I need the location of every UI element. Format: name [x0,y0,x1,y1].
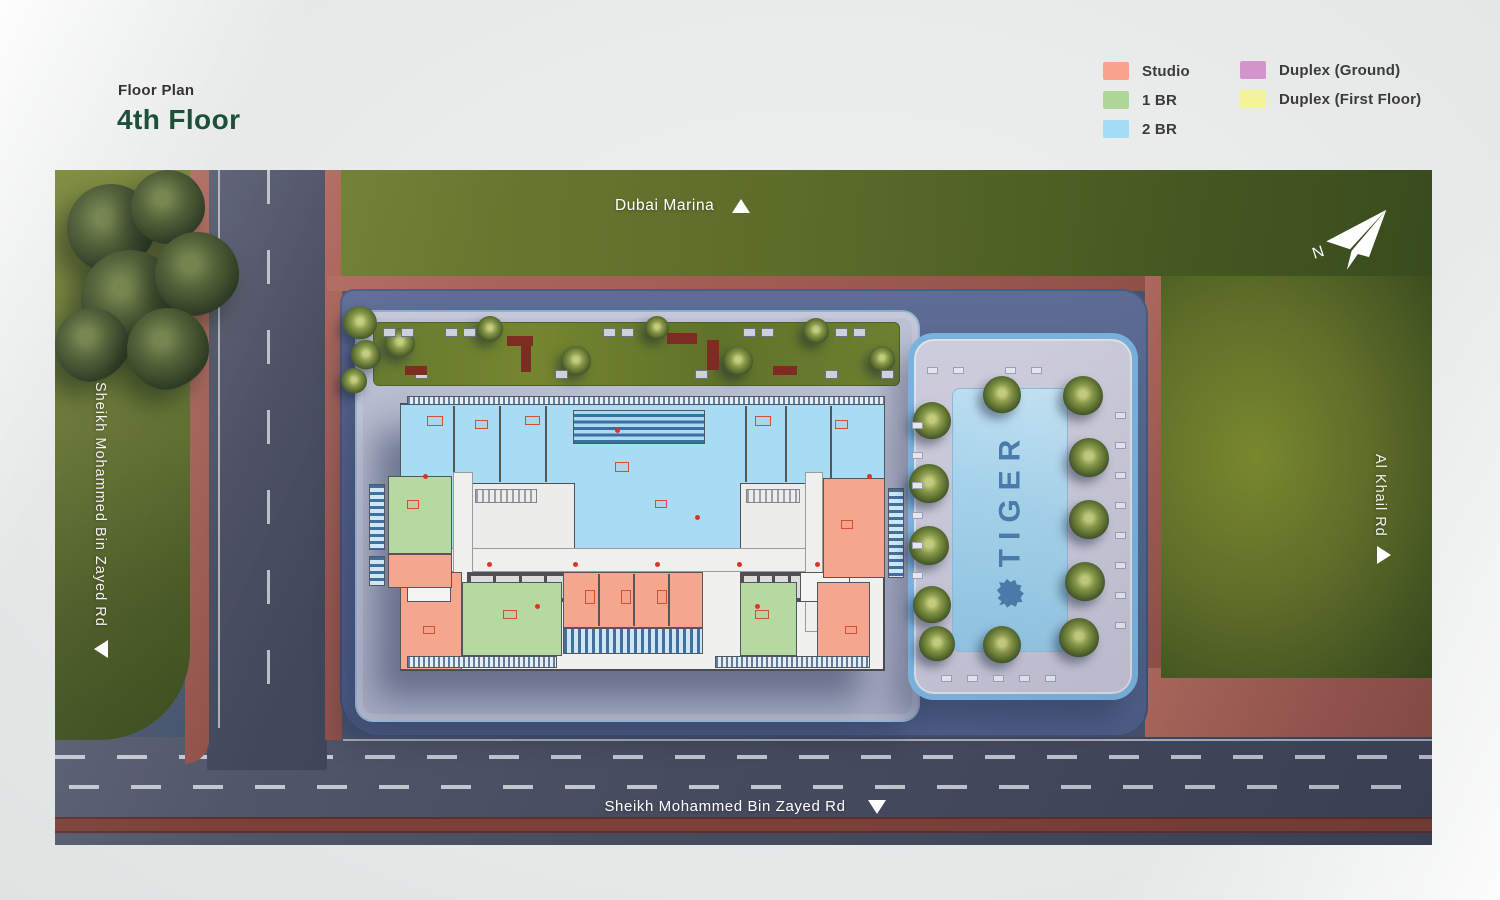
palm-tree-icon [1069,438,1109,478]
unit-1br [388,476,452,554]
palm-tree-icon [1059,618,1099,658]
lane-dashes [267,170,270,715]
pool-lounger [1115,532,1126,539]
legend-label: Duplex (Ground) [1279,62,1400,79]
wall [598,574,600,626]
palm-tree-icon [1069,500,1109,540]
furniture-outline [755,610,769,619]
pool-lounger [1031,367,1042,374]
planter-box [555,370,568,379]
planter-box [621,328,634,337]
label-dubai-marina: Dubai Marina [615,197,750,215]
road-label-bottom: Sheikh Mohammed Bin Zayed Rd [604,798,845,815]
planter-box [463,328,476,337]
road-label-left: Sheikh Mohammed Bin Zayed Rd [92,382,108,627]
plan-annotation-dot [737,562,742,567]
furniture-outline [755,416,771,426]
staircase [475,489,537,503]
site-plan-map: TIGER [55,170,1432,845]
bench [521,346,531,372]
palm-tree-icon [351,340,381,370]
pool-lounger [912,542,923,549]
legend-item-2br: 2 BR [1103,120,1177,138]
sidewalk [1145,668,1432,737]
one-br-swatch [1103,91,1129,109]
grass-right [1161,276,1432,678]
wall [633,574,635,626]
balcony-strip [888,488,904,578]
plan-annotation-dot [487,562,492,567]
palm-tree-icon [343,306,377,340]
pool-lounger [912,512,923,519]
wall [499,406,501,482]
furniture-outline [841,520,853,529]
tree-icon [55,308,129,382]
legend-item-1br: 1 BR [1103,91,1177,109]
unit-studio [823,478,885,578]
floor-plan-label: Floor Plan [118,82,194,99]
palm-tree-icon [913,586,951,624]
palm-tree-icon [919,626,955,662]
furniture-outline [845,626,857,634]
lane-dashes [69,785,1432,789]
planter-box [445,328,458,337]
wall [745,406,747,482]
plan-annotation-dot [755,604,760,609]
planter-box [383,328,396,337]
pool-lounger [1019,675,1030,682]
furniture-outline [503,610,517,619]
label-bottom-road: Sheikh Mohammed Bin Zayed Rd [575,798,915,815]
plan-annotation-dot [423,474,428,479]
road-label-right: Al Khail Rd [1372,454,1388,537]
road-edge-line [343,739,1432,741]
plan-annotation-dot [655,562,660,567]
two-br-swatch [1103,120,1129,138]
furniture-outline [621,590,631,604]
pool-lounger [1115,412,1126,419]
furniture-outline [407,500,419,509]
wall [785,406,787,482]
pool-lounger [1045,675,1056,682]
pool-lounger [912,572,923,579]
planter-box [881,370,894,379]
pool-lounger [1115,622,1126,629]
unit-1br [740,582,797,656]
balcony-strip [369,484,385,550]
bench [405,366,427,375]
legend-item-studio: Studio [1103,62,1190,80]
arrow-up-icon [732,199,750,213]
planter-box [835,328,848,337]
palm-tree-icon [477,316,503,342]
arrow-down-icon [868,800,886,814]
palm-tree-icon [803,318,829,344]
palm-tree-icon [1063,376,1103,416]
grass-top [341,170,1432,276]
planter-box [825,370,838,379]
tree-icon [155,232,239,316]
legend-item-duplex-ground: Duplex (Ground) [1240,61,1400,79]
furniture-outline [657,590,667,604]
pool-lounger [953,367,964,374]
palm-tree-icon [341,368,367,394]
wall [453,406,455,482]
pool-lounger [967,675,978,682]
pool-lounger [912,452,923,459]
bench [667,333,697,344]
plan-annotation-dot [573,562,578,567]
unit-studio [817,582,870,662]
plan-annotation-dot [535,604,540,609]
furniture-outline [423,626,435,634]
legend-label: 2 BR [1142,121,1177,138]
palm-tree-icon [1065,562,1105,602]
palm-tree-icon [983,626,1021,664]
pool-lounger [927,367,938,374]
furniture-outline [655,500,667,508]
palm-tree-icon [645,316,669,340]
pool-lounger [1115,592,1126,599]
furniture-outline [475,420,488,429]
pool-lounger [1005,367,1016,374]
bench [507,336,533,346]
pool-lounger [1115,442,1126,449]
unit-1br [462,582,562,656]
palm-tree-icon [983,376,1021,414]
palm-tree-icon [723,346,753,376]
bench [707,340,719,370]
planter-box [603,328,616,337]
bench [773,366,797,375]
pool-brand-text: TIGER [993,431,1027,568]
balcony-strip [407,656,557,668]
unit-studio [388,554,452,588]
pool-lounger [912,422,923,429]
road-median [55,817,1432,833]
furniture-outline [427,416,443,426]
furniture-outline [615,462,629,472]
pool-branding: TIGER [993,431,1027,610]
balcony-strip [715,656,870,668]
compass-letter: N [1310,243,1326,263]
shaded-terrace [573,410,705,444]
plan-annotation-dot [815,562,820,567]
pool-lounger [941,675,952,682]
pool-lounger [993,675,1004,682]
planter-box [401,328,414,337]
palm-tree-icon [869,346,895,372]
planter-box [743,328,756,337]
north-compass-icon: N [1310,205,1390,273]
plan-annotation-dot [867,474,872,479]
pool-lounger [912,482,923,489]
balcony-strip [563,628,703,654]
arrow-right-icon [1377,546,1391,564]
palm-tree-icon [913,402,951,440]
pool-lounger [1115,502,1126,509]
legend-label: 1 BR [1142,92,1177,109]
arrow-left-icon [94,640,108,658]
duplex-ground-swatch [1240,61,1266,79]
legend-item-duplex-first: Duplex (First Floor) [1240,90,1421,108]
legend-label: Studio [1142,63,1190,80]
plan-annotation-dot [615,428,620,433]
swimming-pool: TIGER [952,388,1068,652]
tree-icon [127,308,209,390]
wall [668,574,670,626]
staircase [746,489,800,503]
page-title: 4th Floor [117,104,240,136]
furniture-outline [525,416,540,425]
road-label-top: Dubai Marina [615,197,714,215]
tiger-logo-icon [994,577,1026,609]
balcony-strip [369,556,385,586]
legend-label: Duplex (First Floor) [1279,91,1421,108]
planter-box [761,328,774,337]
planter-box [695,370,708,379]
pool-lounger [1115,562,1126,569]
wall [545,406,547,482]
duplex-first-swatch [1240,90,1266,108]
pool-lounger [1115,472,1126,479]
studio-swatch [1103,62,1129,80]
wall [830,406,832,482]
furniture-outline [835,420,848,429]
furniture-outline [585,590,595,604]
planter-box [853,328,866,337]
plan-annotation-dot [695,515,700,520]
page: Floor Plan 4th Floor Studio 1 BR 2 BR Du… [0,0,1500,900]
